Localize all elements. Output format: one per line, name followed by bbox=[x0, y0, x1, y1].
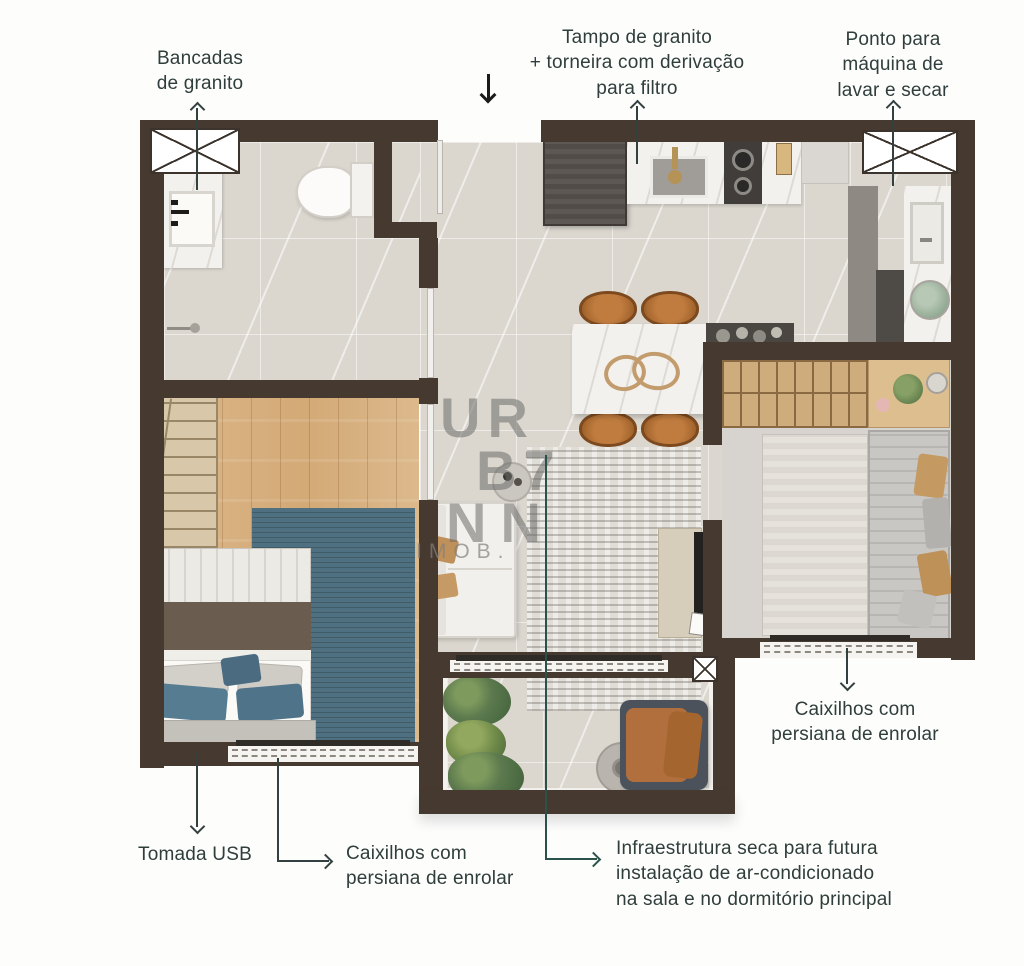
toilet-tank bbox=[350, 162, 374, 218]
watermark-logo: UR B7 NN bbox=[440, 392, 562, 550]
window-bar bbox=[236, 740, 410, 746]
wall bbox=[374, 142, 392, 227]
arrow-right-icon bbox=[318, 854, 334, 870]
toilet-bowl bbox=[296, 166, 356, 218]
shower-head-knob bbox=[190, 323, 200, 333]
leader-line bbox=[196, 108, 198, 190]
label-ponto-maquina: Ponto para máquina de lavar e secar bbox=[803, 27, 983, 103]
vanity-plant bbox=[893, 374, 923, 404]
watermark-line: B7 bbox=[476, 445, 562, 498]
entry-door-leaf bbox=[437, 140, 443, 214]
cooktop-burner-2 bbox=[734, 177, 752, 195]
leader-line bbox=[636, 106, 638, 164]
fridge bbox=[543, 138, 627, 226]
sideboard-dishes bbox=[716, 329, 730, 343]
bathroom-faucet-handle2 bbox=[171, 221, 178, 226]
window-bedroom bbox=[228, 746, 418, 762]
balcony-plant bbox=[443, 676, 511, 726]
label-caixilhos-persiana-right: Caixilhos com persiana de enrolar bbox=[745, 697, 965, 748]
bed-duvet-foot bbox=[153, 548, 311, 604]
vanity-mirror bbox=[926, 372, 948, 394]
laundry-faucet bbox=[920, 238, 932, 242]
shaft-x-box bbox=[692, 656, 718, 682]
laundry-divider bbox=[848, 186, 878, 352]
cooktop-burner-1 bbox=[732, 149, 754, 171]
shaft-x-box bbox=[150, 128, 240, 174]
bathroom-faucet bbox=[171, 210, 189, 214]
label-caixilhos-persiana-bottom: Caixilhos com persiana de enrolar bbox=[346, 841, 514, 892]
arrow-right-icon bbox=[586, 852, 602, 868]
window-bar bbox=[770, 635, 910, 641]
arrow-down-icon bbox=[840, 676, 856, 692]
sideboard-dishes bbox=[736, 327, 748, 339]
wall bbox=[419, 790, 735, 814]
window-bar bbox=[456, 655, 662, 661]
kitchen-counter-right bbox=[801, 140, 849, 184]
knife-block bbox=[776, 143, 792, 175]
wall bbox=[951, 120, 975, 660]
kitchen-faucet bbox=[672, 147, 678, 169]
bedroom-door-leaf bbox=[427, 404, 434, 500]
perfume-tray bbox=[876, 398, 890, 412]
wall bbox=[419, 378, 438, 404]
dining-chair bbox=[641, 411, 699, 447]
wall bbox=[419, 238, 438, 288]
dining-chair bbox=[641, 291, 699, 327]
leader-line bbox=[545, 455, 547, 860]
shaft-x-box bbox=[862, 130, 958, 174]
bathroom-faucet-handle bbox=[171, 200, 178, 205]
window-main-bedroom bbox=[760, 642, 917, 658]
leader-line bbox=[277, 758, 279, 862]
laundry-sink bbox=[910, 202, 944, 264]
bed-pillow-tan bbox=[913, 453, 949, 499]
laundry-plant bbox=[910, 280, 950, 320]
wardrobe bbox=[722, 360, 868, 428]
pillow-blue bbox=[236, 683, 305, 723]
bed-cushion-gray bbox=[922, 497, 952, 549]
lounge-chair-back bbox=[663, 710, 704, 779]
watermark-line: UR bbox=[440, 392, 562, 445]
dining-chair bbox=[579, 291, 637, 327]
arrow-down-icon bbox=[190, 819, 206, 835]
watermark-subtext: IMOB. bbox=[416, 540, 511, 564]
bedside-rug bbox=[762, 434, 868, 636]
bed-blanket bbox=[153, 602, 311, 652]
sideboard-dishes bbox=[771, 327, 782, 338]
laundry-cabinet bbox=[876, 270, 906, 352]
wall bbox=[703, 352, 722, 445]
floor-plan-page: UR B7 NN IMOB. Bancadas de granito Tampo… bbox=[0, 0, 1024, 966]
wall bbox=[703, 342, 953, 360]
dining-chair bbox=[579, 411, 637, 447]
wall bbox=[374, 222, 437, 238]
window-balcony-door bbox=[450, 660, 668, 672]
leader-line bbox=[892, 106, 894, 186]
label-bancadas-de-granito: Bancadas de granito bbox=[110, 46, 290, 97]
label-tampo-de-granito: Tampo de granito + torneira com derivaçã… bbox=[487, 25, 787, 101]
sofa-seat-split bbox=[448, 568, 512, 570]
pillow-accent-teal bbox=[220, 653, 262, 686]
wall bbox=[140, 380, 438, 398]
pillow-blue bbox=[156, 683, 229, 723]
wardrobe-rail bbox=[724, 392, 866, 394]
wall bbox=[140, 120, 164, 768]
kitchen-faucet-base bbox=[668, 170, 682, 184]
label-tomada-usb: Tomada USB bbox=[138, 842, 252, 867]
label-infraestrutura-ar-condicionado: Infraestrutura seca para futura instalaç… bbox=[616, 836, 892, 912]
bathroom-door-leaf bbox=[427, 288, 434, 378]
leader-line bbox=[196, 753, 198, 827]
